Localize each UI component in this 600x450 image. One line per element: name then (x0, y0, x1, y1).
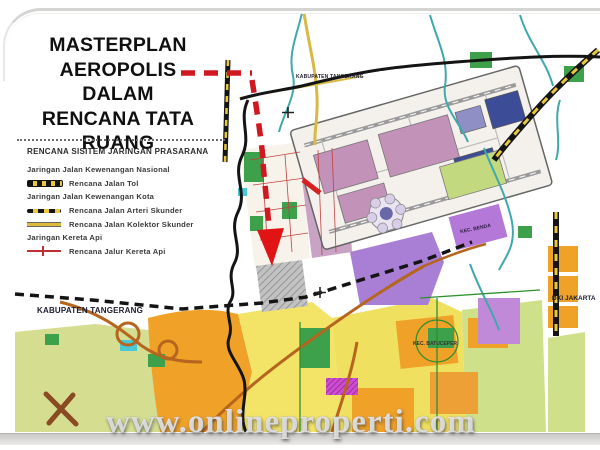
slide-canvas: MASTERPLAN AEROPOLIS DALAM RENCANA TATA … (0, 0, 600, 450)
collector-road-symbol (27, 222, 61, 227)
legend-label: Rencana Jalan Arteri Skunder (69, 206, 182, 215)
legend-item-collector-road: Rencana Jalan Kolektor Skunder (27, 217, 239, 231)
label-kabupaten-tangerang-west: KABUPATEN TANGERANG (37, 306, 143, 315)
dki-border-blocks (548, 246, 578, 328)
legend-label: Rencana Jalur Kereta Api (69, 247, 166, 256)
map-legend: RENCANA SISITEM JARINGAN PRASARANA Jarin… (27, 147, 239, 258)
toll-road-symbol (27, 180, 63, 187)
label-dki-jakarta: DKI JAKARTA (552, 295, 596, 302)
legend-item-railway: Rencana Jalur Kereta Api (27, 245, 239, 259)
watermark-text: www.onlineproperti.com (106, 404, 476, 441)
title-line: DALAM (6, 82, 230, 107)
legend-divider (17, 139, 225, 141)
label-kabupaten-tangerang-top: KABUPATEN TANGERANG (296, 74, 364, 80)
title-line: MASTERPLAN (6, 33, 230, 58)
legend-label: Jaringan Jalan Kewenangan Nasional (27, 165, 170, 174)
legend-heading-national-roads: Jaringan Jalan Kewenangan Nasional (27, 163, 239, 177)
slide-title: MASTERPLAN AEROPOLIS DALAM RENCANA TATA … (6, 33, 230, 156)
label-kec-batuceper: KEC. BATUCEPER (413, 341, 457, 347)
legend-item-toll-road: Rencana Jalan Tol (27, 177, 239, 191)
legend-label: Jaringan Jalan Kewenangan Kota (27, 192, 154, 201)
arterial-road-symbol (27, 209, 61, 213)
legend-label: Jaringan Kereta Api (27, 233, 102, 242)
legend-title: RENCANA SISITEM JARINGAN PRASARANA (27, 147, 239, 156)
railway-symbol (27, 250, 61, 252)
legend-item-arterial-road: Rencana Jalan Arteri Skunder (27, 204, 239, 218)
legend-heading-railway: Jaringan Kereta Api (27, 231, 239, 245)
airport-plan (290, 65, 553, 250)
title-line: AEROPOLIS (6, 58, 230, 83)
legend-heading-city-roads: Jaringan Jalan Kewenangan Kota (27, 190, 239, 204)
legend-label: Rencana Jalan Kolektor Skunder (69, 220, 194, 229)
legend-label: Rencana Jalan Tol (69, 179, 139, 188)
